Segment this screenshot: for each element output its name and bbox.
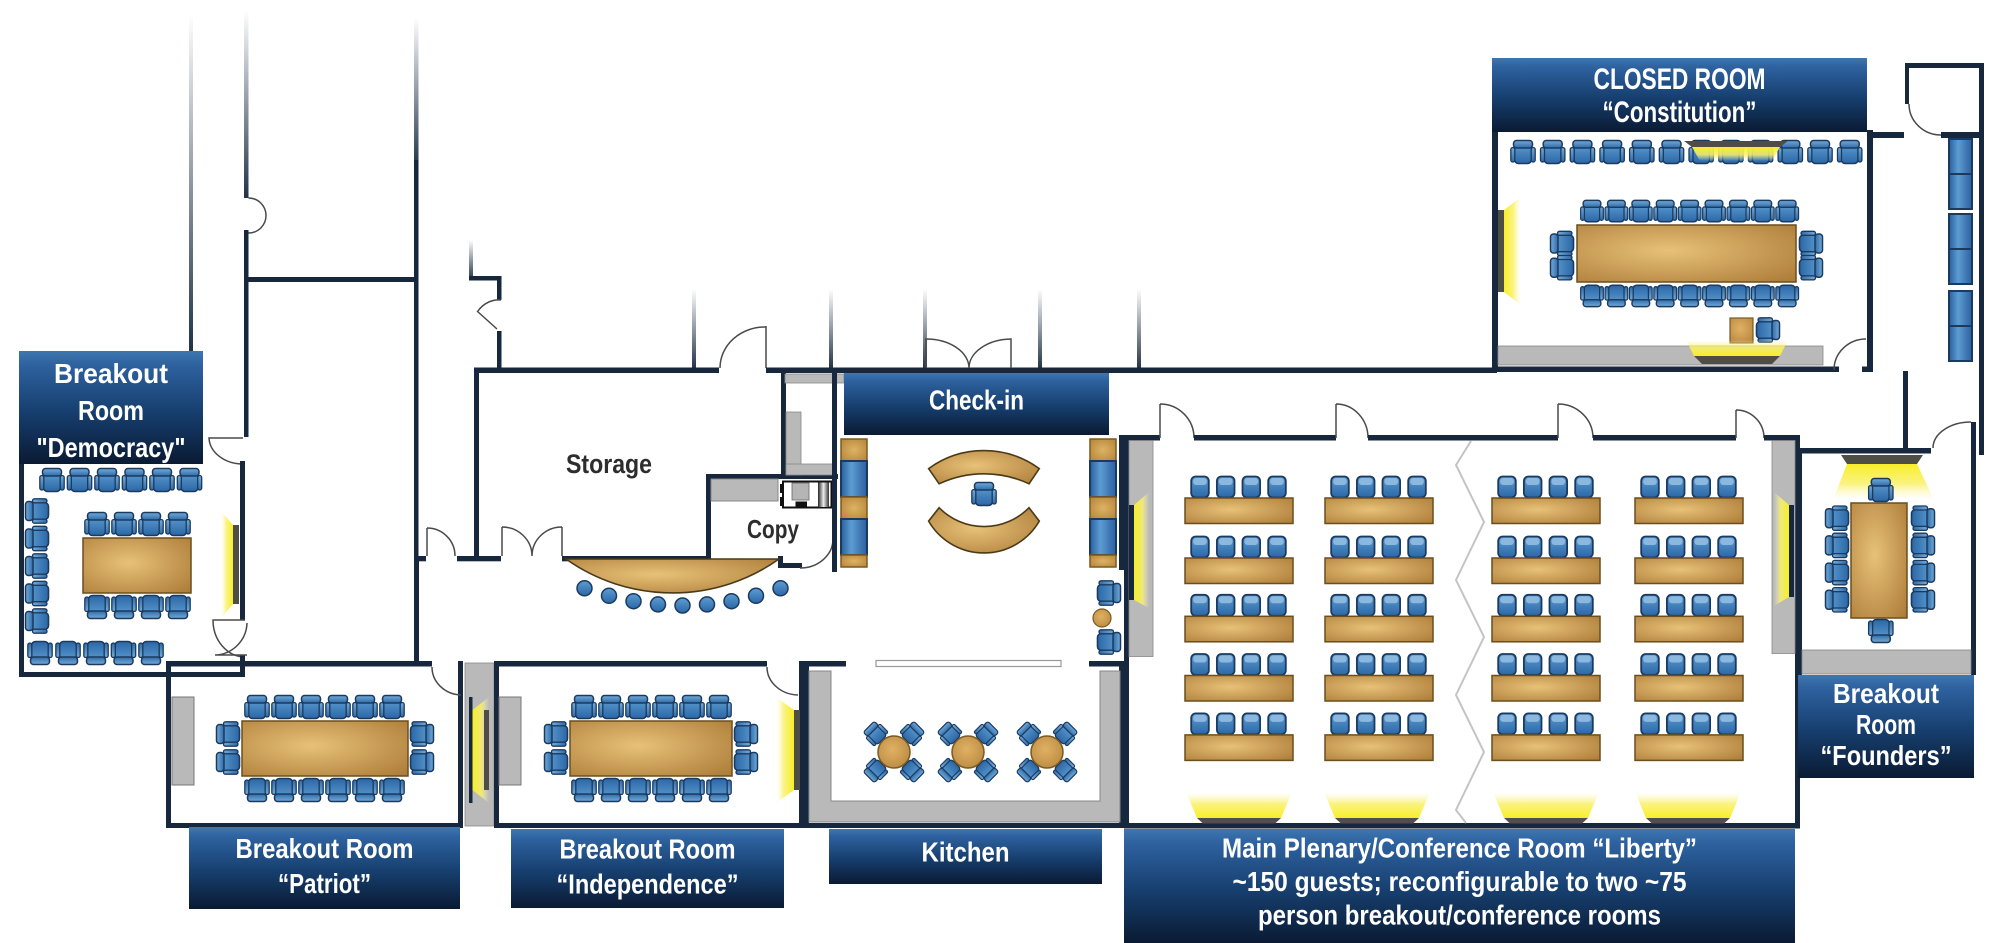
svg-text:Check-in: Check-in — [929, 385, 1024, 416]
svg-text:~150 guests; reconfigurable to: ~150 guests; reconfigurable to two ~75 — [1233, 866, 1687, 897]
svg-text:Copy: Copy — [747, 514, 799, 544]
svg-text:Storage: Storage — [566, 449, 652, 479]
svg-text:“Independence”: “Independence” — [557, 869, 739, 900]
svg-text:“Constitution”: “Constitution” — [1603, 96, 1757, 129]
svg-text:Kitchen: Kitchen — [922, 836, 1010, 867]
svg-text:person breakout/conference roo: person breakout/conference rooms — [1258, 899, 1661, 930]
svg-text:Room: Room — [78, 395, 144, 426]
svg-text:Breakout: Breakout — [54, 358, 168, 389]
svg-text:Breakout Room: Breakout Room — [236, 833, 414, 864]
svg-text:"Democracy": "Democracy" — [37, 432, 186, 463]
svg-text:Breakout: Breakout — [1833, 678, 1939, 709]
svg-text:Breakout Room: Breakout Room — [560, 834, 736, 865]
svg-text:Main Plenary/Conference Room “: Main Plenary/Conference Room “Liberty” — [1222, 832, 1697, 863]
svg-text:“Patriot”: “Patriot” — [278, 868, 371, 899]
svg-text:Room: Room — [1856, 709, 1916, 740]
svg-text:“Founders”: “Founders” — [1821, 740, 1952, 771]
svg-text:CLOSED ROOM: CLOSED ROOM — [1594, 63, 1766, 96]
